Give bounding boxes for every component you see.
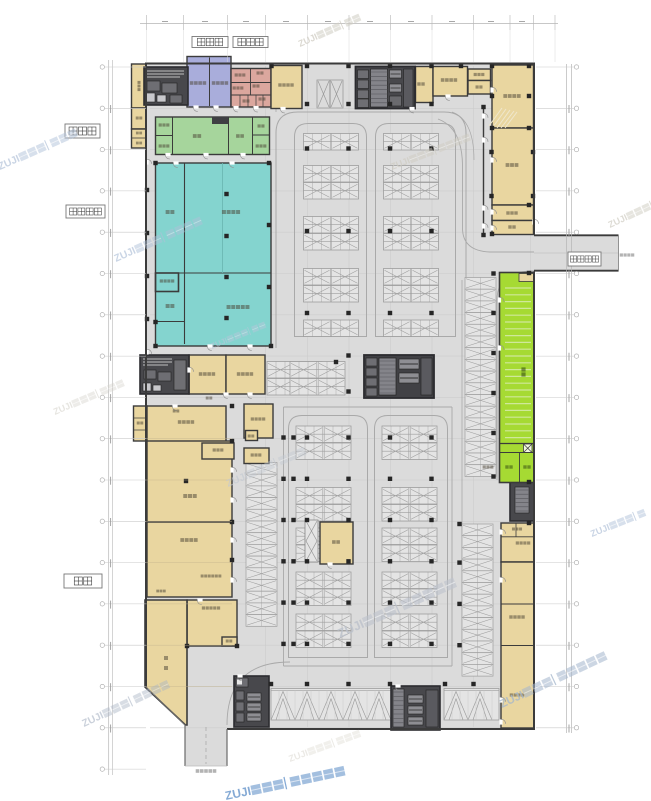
svg-text:ZUJI: ZUJI	[81, 710, 106, 729]
svg-text:ZUJI: ZUJI	[297, 32, 319, 49]
svg-text:ZUJI: ZUJI	[0, 154, 22, 173]
svg-text:ZUJI: ZUJI	[113, 246, 138, 265]
svg-text:ZUJI: ZUJI	[287, 748, 309, 764]
svg-text:ZUJI: ZUJI	[589, 522, 611, 539]
svg-text:ZUJI: ZUJI	[52, 400, 74, 417]
svg-text:ZUJI: ZUJI	[224, 784, 253, 801]
svg-text:ZUJI: ZUJI	[607, 212, 629, 229]
